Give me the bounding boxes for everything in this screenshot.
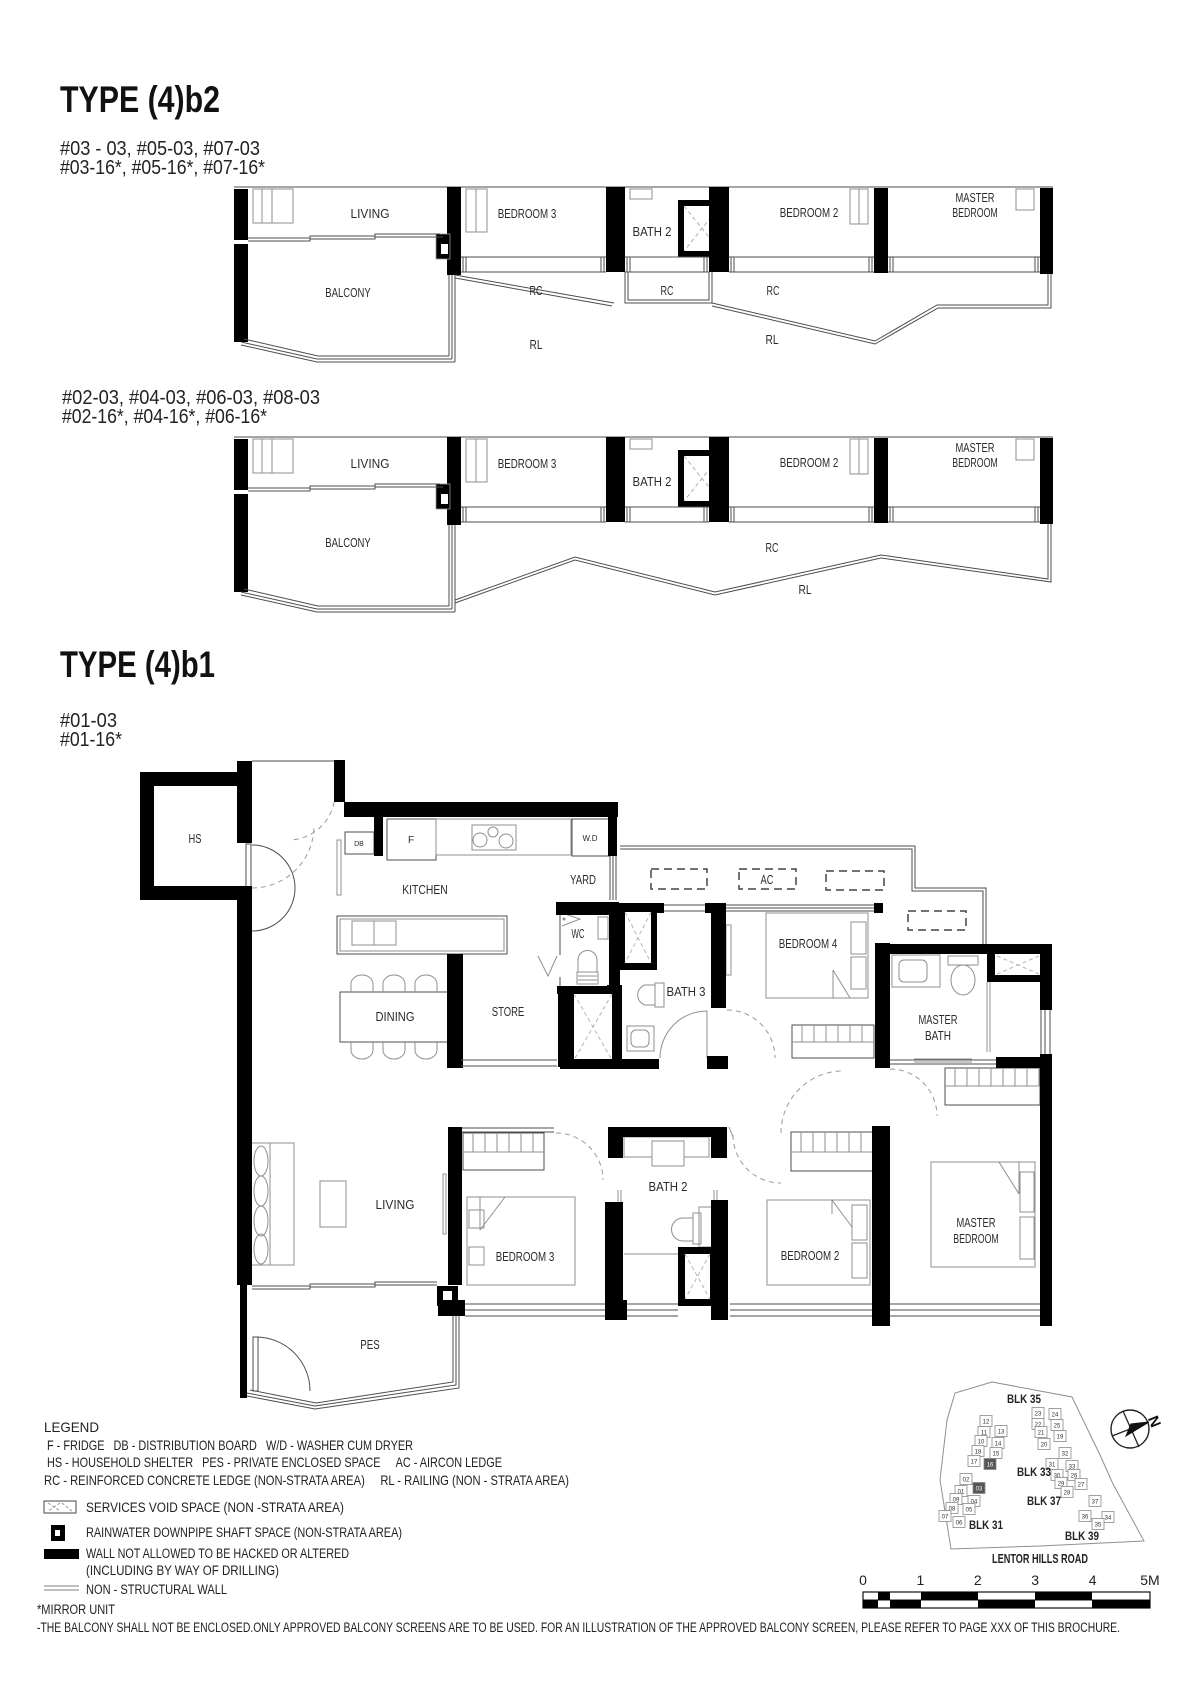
svg-text:MASTER: MASTER	[956, 440, 995, 455]
svg-text:RC: RC	[767, 283, 780, 298]
svg-text:28: 28	[1064, 1491, 1071, 1497]
svg-text:02: 02	[963, 1478, 970, 1484]
svg-text:RL: RL	[530, 337, 543, 352]
svg-text:15: 15	[993, 1452, 1000, 1458]
svg-text:MASTER: MASTER	[956, 190, 995, 205]
svg-text:F - FRIDGE DB - DISTRIBUTION: F - FRIDGE DB - DISTRIBUTION BOARD W/D -…	[47, 1437, 413, 1453]
svg-text:BEDROOM 2: BEDROOM 2	[781, 1248, 840, 1263]
svg-text:HS - HOUSEHOLD SHELTER PES -: HS - HOUSEHOLD SHELTER PES - PRIVATE ENC…	[47, 1454, 502, 1470]
svg-text:BATH 2: BATH 2	[649, 1179, 688, 1194]
svg-text:LEGEND: LEGEND	[44, 1419, 99, 1435]
svg-text:TYPE (4)b1: TYPE (4)b1	[60, 644, 215, 685]
svg-text:RC: RC	[766, 540, 779, 555]
svg-text:-THE BALCONY SHALL NOT BE ENCL: -THE BALCONY SHALL NOT BE ENCLOSED.ONLY …	[37, 1620, 1120, 1635]
svg-text:LIVING: LIVING	[351, 206, 390, 221]
svg-text:SERVICES VOID SPACE (NON -STRA: SERVICES VOID SPACE (NON -STRATA AREA)	[86, 1500, 344, 1515]
svg-text:TYPE (4)b2: TYPE (4)b2	[60, 79, 220, 120]
svg-text:BEDROOM: BEDROOM	[953, 1231, 999, 1246]
svg-text:4: 4	[1089, 1572, 1097, 1588]
svg-text:BATH 2: BATH 2	[633, 224, 672, 239]
svg-text:KITCHEN: KITCHEN	[402, 882, 448, 897]
svg-text:23: 23	[1035, 1412, 1042, 1418]
svg-text:DINING: DINING	[376, 1009, 415, 1024]
svg-text:1: 1	[917, 1572, 925, 1588]
svg-text:(INCLUDING BY WAY OF DRILLING): (INCLUDING BY WAY OF DRILLING)	[86, 1563, 279, 1578]
svg-text:W.D: W.D	[582, 834, 597, 843]
svg-text:RC: RC	[661, 283, 674, 298]
svg-text:19: 19	[1057, 1435, 1064, 1441]
svg-text:BEDROOM 2: BEDROOM 2	[780, 455, 839, 470]
svg-text:BALCONY: BALCONY	[325, 535, 371, 550]
svg-text:BLK 35: BLK 35	[1007, 1392, 1041, 1406]
svg-text:STORE: STORE	[492, 1004, 525, 1019]
svg-text:AC: AC	[761, 872, 774, 887]
svg-text:RL: RL	[799, 582, 812, 597]
svg-text:BLK 37: BLK 37	[1027, 1494, 1061, 1508]
svg-text:LENTOR HILLS ROAD: LENTOR HILLS ROAD	[992, 1551, 1088, 1566]
svg-text:BEDROOM 3: BEDROOM 3	[496, 1249, 555, 1264]
svg-text:18: 18	[975, 1450, 982, 1456]
svg-text:YARD: YARD	[570, 872, 596, 887]
svg-text:05: 05	[966, 1508, 973, 1514]
svg-text:13: 13	[998, 1430, 1005, 1436]
svg-text:RAINWATER DOWNPIPE SHAFT SPACE: RAINWATER DOWNPIPE SHAFT SPACE (NON-STRA…	[86, 1525, 402, 1540]
svg-text:BLK 39: BLK 39	[1065, 1529, 1099, 1543]
svg-text:LIVING: LIVING	[376, 1197, 415, 1212]
svg-text:BEDROOM: BEDROOM	[952, 455, 998, 470]
svg-text:36: 36	[1082, 1515, 1089, 1521]
svg-text:06: 06	[956, 1521, 963, 1527]
svg-text:WALL NOT ALLOWED TO BE HACKED: WALL NOT ALLOWED TO BE HACKED OR ALTERED	[86, 1546, 349, 1561]
svg-text:2: 2	[974, 1572, 982, 1588]
svg-text:F: F	[408, 835, 414, 846]
svg-text:#03-16*, #05-16*, #07-16*: #03-16*, #05-16*, #07-16*	[60, 157, 265, 179]
svg-text:BEDROOM 2: BEDROOM 2	[780, 205, 839, 220]
svg-text:*MIRROR UNIT: *MIRROR UNIT	[37, 1602, 115, 1617]
svg-text:03: 03	[976, 1487, 983, 1493]
svg-text:0: 0	[859, 1572, 867, 1588]
svg-text:BEDROOM: BEDROOM	[952, 205, 998, 220]
svg-text:12: 12	[983, 1420, 990, 1426]
svg-text:24: 24	[1052, 1413, 1059, 1419]
svg-text:16: 16	[987, 1463, 994, 1469]
svg-text:RL: RL	[766, 332, 779, 347]
svg-text:NON - STRUCTURAL WALL: NON - STRUCTURAL WALL	[86, 1582, 227, 1597]
svg-text:#01-16*: #01-16*	[60, 729, 122, 751]
svg-text:21: 21	[1038, 1431, 1045, 1437]
svg-text:BLK 33: BLK 33	[1017, 1465, 1051, 1479]
svg-text:07: 07	[942, 1515, 949, 1521]
svg-text:5M: 5M	[1140, 1572, 1159, 1588]
svg-text:BATH 2: BATH 2	[633, 474, 672, 489]
svg-text:#02-16*, #04-16*, #06-16*: #02-16*, #04-16*, #06-16*	[62, 406, 267, 428]
svg-text:WC: WC	[572, 926, 585, 941]
svg-text:MASTER: MASTER	[957, 1215, 996, 1230]
svg-text:17: 17	[971, 1460, 978, 1466]
svg-text:BATH 3: BATH 3	[667, 984, 706, 999]
svg-text:BATH: BATH	[925, 1028, 951, 1043]
svg-text:MASTER: MASTER	[919, 1012, 958, 1027]
svg-text:10: 10	[978, 1440, 985, 1446]
svg-text:PES: PES	[360, 1337, 380, 1352]
svg-text:3: 3	[1031, 1572, 1039, 1588]
svg-text:BEDROOM 3: BEDROOM 3	[498, 456, 557, 471]
svg-text:HS: HS	[189, 831, 202, 846]
svg-text:RC: RC	[530, 283, 543, 298]
svg-text:34: 34	[1105, 1516, 1112, 1522]
svg-text:27: 27	[1078, 1483, 1085, 1489]
svg-text:DB: DB	[354, 841, 364, 848]
svg-text:BEDROOM 4: BEDROOM 4	[779, 936, 838, 951]
svg-text:37: 37	[1092, 1500, 1099, 1506]
svg-text:RC - REINFORCED CONCRETE LEDGE: RC - REINFORCED CONCRETE LEDGE (NON-STRA…	[44, 1472, 569, 1488]
svg-text:25: 25	[1054, 1424, 1061, 1430]
svg-text:BLK 31: BLK 31	[969, 1518, 1003, 1532]
svg-text:14: 14	[995, 1442, 1002, 1448]
svg-text:35: 35	[1095, 1523, 1102, 1529]
svg-text:LIVING: LIVING	[351, 456, 390, 471]
svg-text:BEDROOM 3: BEDROOM 3	[498, 206, 557, 221]
svg-text:BALCONY: BALCONY	[325, 285, 371, 300]
svg-text:20: 20	[1041, 1443, 1048, 1449]
svg-text:32: 32	[1062, 1452, 1069, 1458]
